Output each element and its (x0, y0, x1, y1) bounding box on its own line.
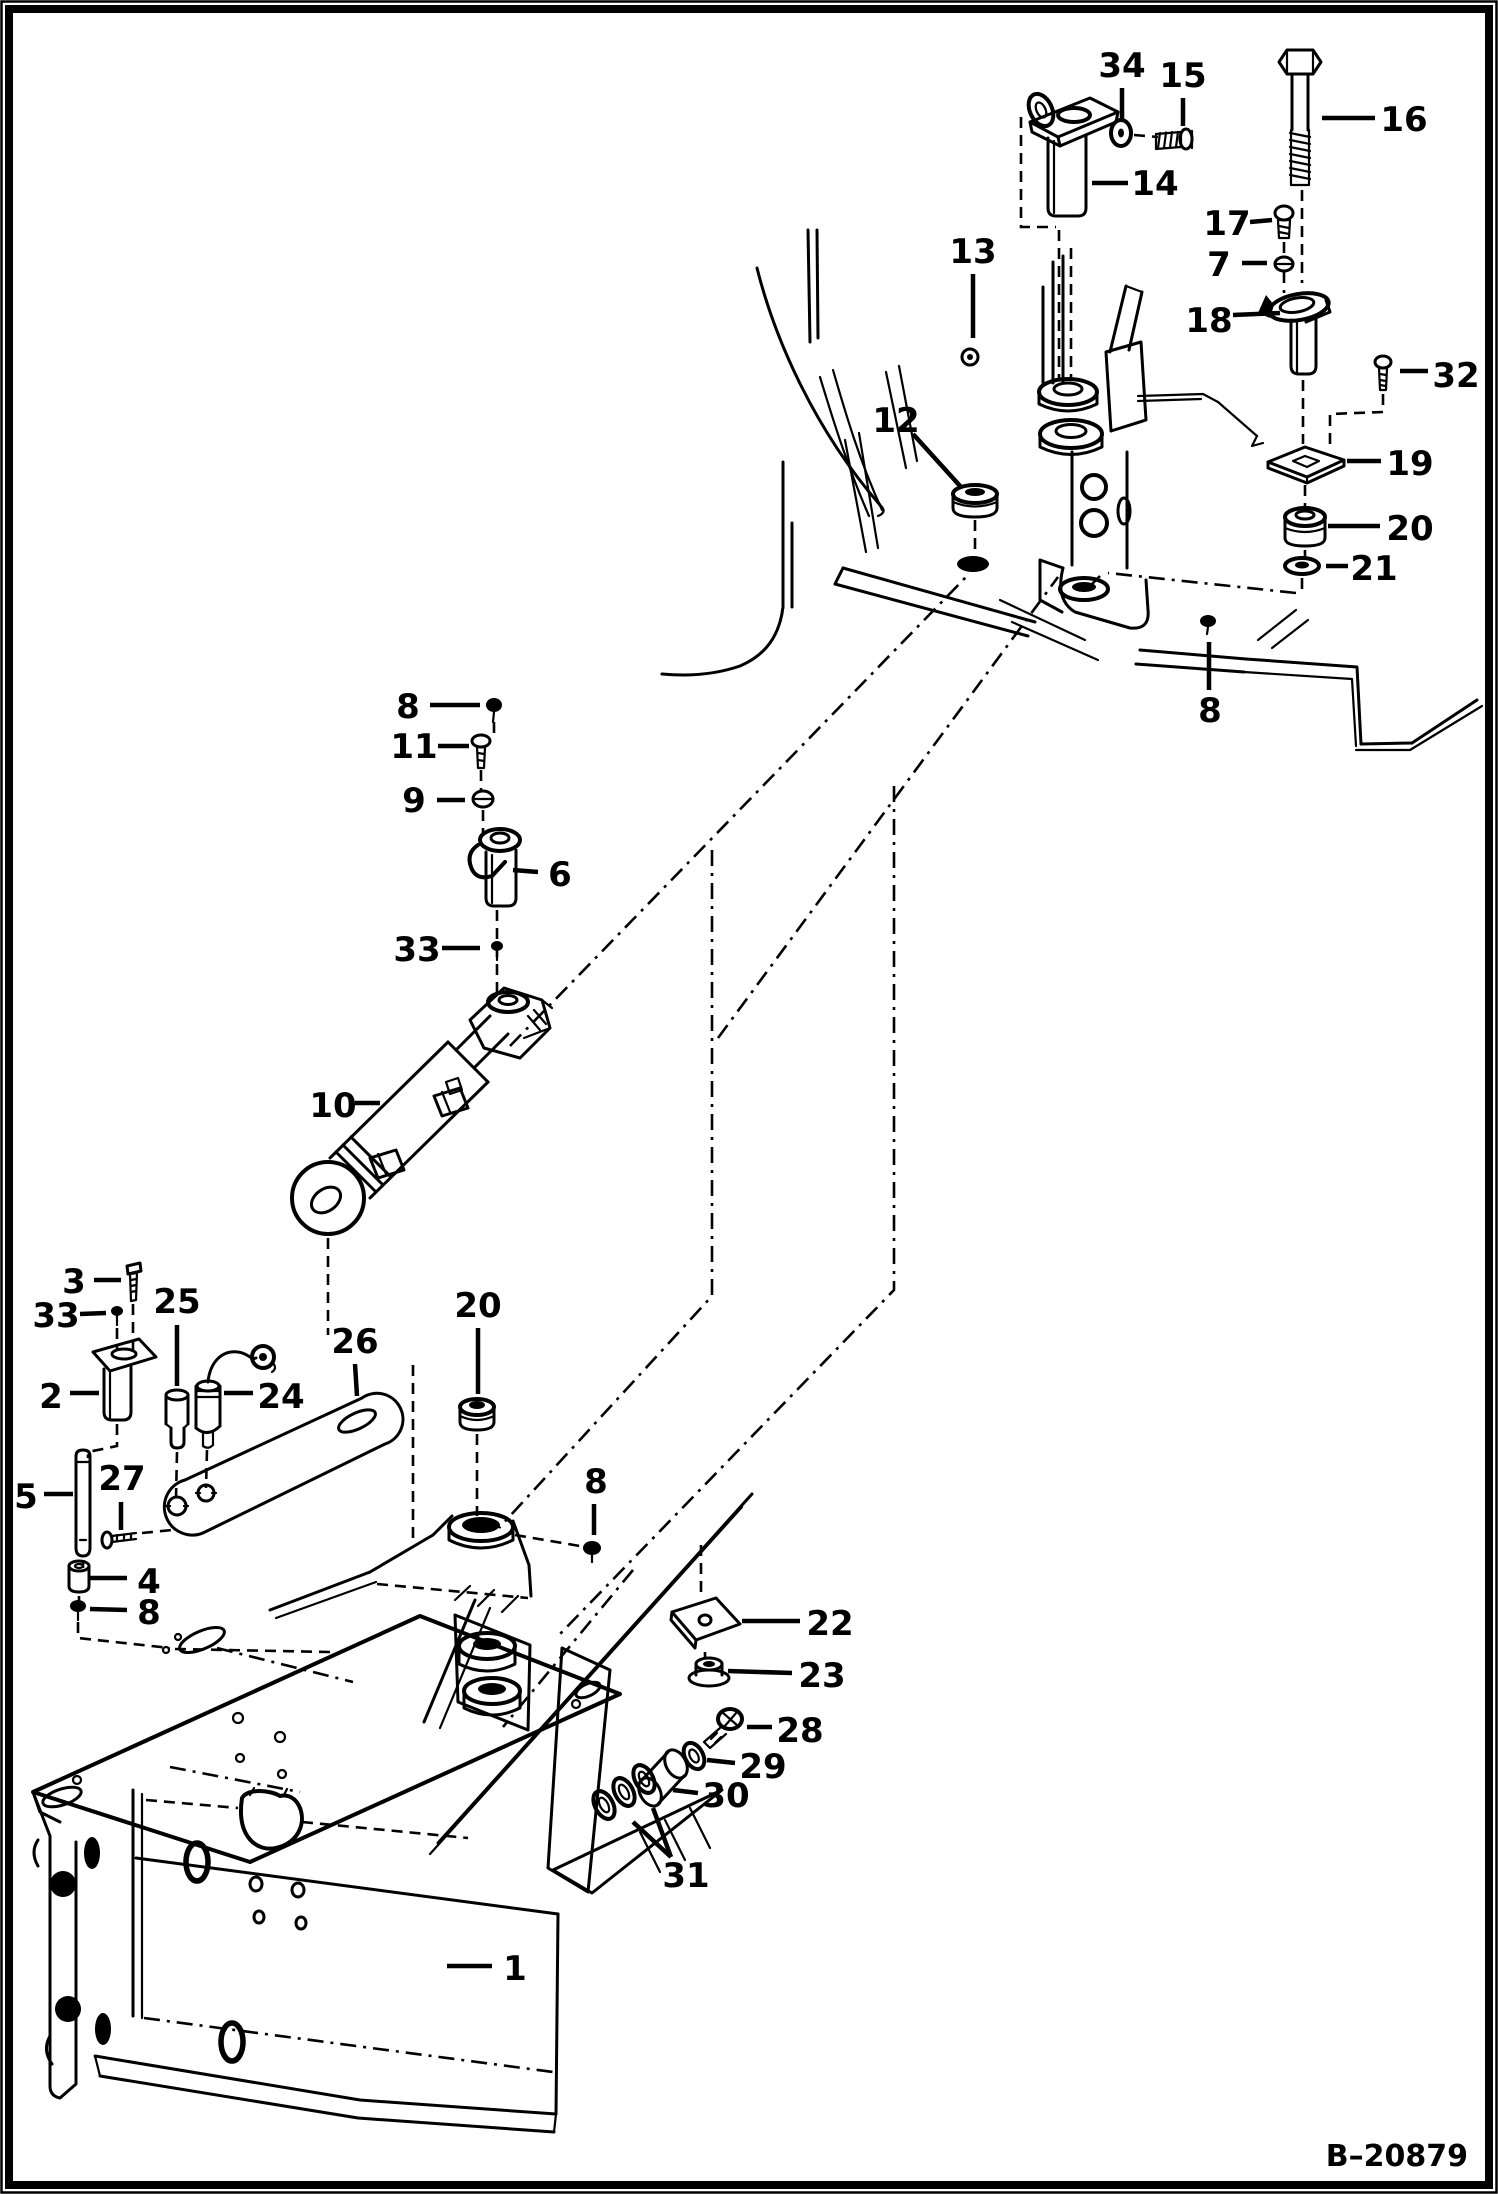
callout-label-8: 8 (1198, 691, 1222, 731)
callout-leader-23 (728, 1671, 792, 1673)
part-6-pivot-pin (470, 829, 520, 906)
part-22-plate (671, 1598, 740, 1648)
part-8-pin (1200, 615, 1216, 634)
callout-label-24: 24 (257, 1377, 304, 1417)
callout-label-20: 20 (1386, 509, 1433, 549)
callout-label-8: 8 (584, 1462, 608, 1502)
part-7-nut (1275, 257, 1293, 271)
part-11-screw (472, 735, 490, 768)
part-5-pin (76, 1450, 90, 1556)
callout-label-8: 8 (137, 1593, 161, 1633)
cylinder-mount-bracket (270, 1513, 531, 1618)
callout-label-15: 15 (1159, 56, 1206, 96)
callout-label-16: 16 (1380, 100, 1427, 140)
callout-leader-29 (707, 1760, 735, 1763)
callout-leader-26 (355, 1364, 357, 1396)
callout-label-10: 10 (309, 1086, 356, 1126)
part-3-bolt (127, 1263, 141, 1301)
exploded-parts-diagram: 3415161417713183212192021881196331033325… (0, 0, 1498, 2194)
callout-label-7: 7 (1207, 245, 1231, 285)
part-21-washer (1285, 558, 1319, 574)
part-17-screw (1275, 206, 1293, 238)
part-19-plate (1268, 447, 1344, 483)
callout-label-5: 5 (14, 1477, 38, 1517)
callout-leader-18 (1233, 313, 1280, 315)
part-34-washer (1111, 120, 1131, 146)
part-25-pin (166, 1390, 188, 1448)
part-8-pin (583, 1541, 601, 1562)
callout-layer: 3415161417713183212192021881196331033325… (14, 46, 1480, 1989)
part-8-pin (486, 698, 502, 722)
callout-label-11: 11 (390, 727, 437, 767)
page-border (2, 2, 1497, 2193)
callout-label-20: 20 (454, 1286, 501, 1326)
callout-label-12: 12 (872, 401, 919, 441)
part-33-pin (491, 941, 503, 960)
callout-label-13: 13 (949, 232, 996, 272)
callout-label-26: 26 (331, 1322, 378, 1362)
callout-leader-17 (1250, 220, 1272, 222)
callout-label-28: 28 (776, 1711, 823, 1751)
part-20-bushing-right (1285, 508, 1325, 546)
callout-label-34: 34 (1098, 46, 1145, 86)
callout-label-21: 21 (1350, 549, 1397, 589)
callout-leader-33 (80, 1313, 106, 1314)
callout-leader-30 (673, 1790, 698, 1793)
callout-label-14: 14 (1131, 164, 1178, 204)
callout-label-23: 23 (798, 1656, 845, 1696)
part-15-bolt (1156, 129, 1192, 149)
callout-label-27: 27 (98, 1459, 145, 1499)
callout-label-6: 6 (548, 855, 572, 895)
part-20-bushing-left (460, 1399, 494, 1430)
part-32-screw (1375, 356, 1391, 390)
callout-label-31: 31 (662, 1856, 709, 1896)
callout-label-33: 33 (393, 930, 440, 970)
callout-label-25: 25 (153, 1282, 200, 1322)
callout-label-22: 22 (806, 1604, 853, 1644)
part-4-bushing (69, 1561, 89, 1592)
part-8-pin (70, 1600, 86, 1620)
callout-label-32: 32 (1432, 356, 1479, 396)
callout-label-1: 1 (503, 1949, 527, 1989)
parts-diagram-page: 3415161417713183212192021881196331033325… (0, 0, 1498, 2194)
figure-ref-code: B–20879 (1326, 2139, 1468, 2174)
part-12-bushing (953, 485, 997, 517)
part-23-nut (689, 1658, 729, 1686)
callout-leader-6 (513, 870, 538, 872)
part-27-bolt (102, 1532, 136, 1548)
part-18-keeper-pin (1258, 289, 1331, 374)
part-14-pivot-pin (1024, 90, 1118, 216)
callout-label-9: 9 (402, 781, 426, 821)
callout-label-19: 19 (1386, 444, 1433, 484)
callout-label-17: 17 (1203, 204, 1250, 244)
part-28-bolt (704, 1709, 742, 1748)
callout-leader-8 (90, 1609, 127, 1610)
part-16-bolt (1279, 50, 1321, 185)
callout-label-33: 33 (32, 1296, 79, 1336)
part-2-pivot-pin (93, 1339, 156, 1420)
part-13-nut (962, 349, 978, 365)
callout-leader-12 (913, 434, 961, 487)
callout-label-30: 30 (702, 1776, 749, 1816)
part-9-nut (473, 791, 493, 807)
callout-label-2: 2 (39, 1377, 63, 1417)
mount-tower (957, 256, 1148, 660)
callout-label-8: 8 (396, 687, 420, 727)
part-30-spacer (634, 1746, 692, 1810)
part-33-pin (111, 1306, 123, 1325)
callout-label-18: 18 (1185, 301, 1232, 341)
